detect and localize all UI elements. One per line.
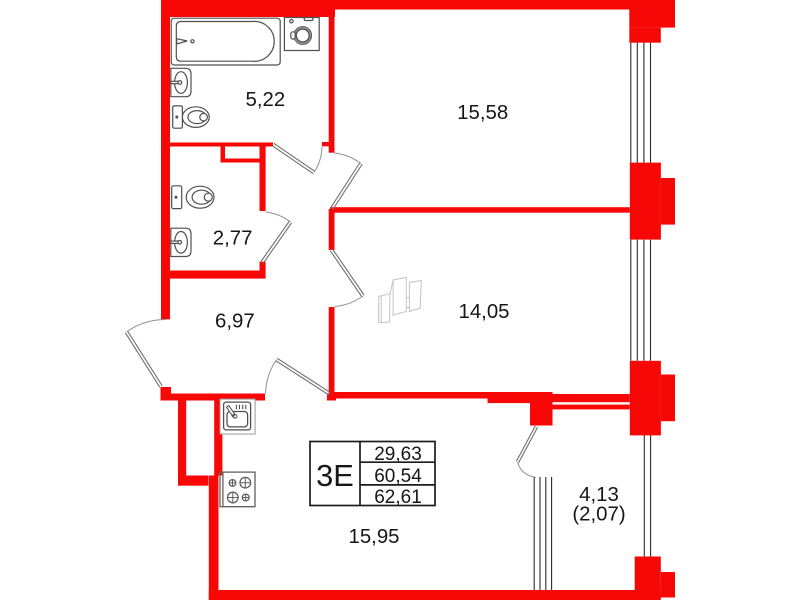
svg-text:6,97: 6,97: [215, 310, 255, 332]
svg-text:15,95: 15,95: [348, 526, 399, 548]
svg-text:15,58: 15,58: [457, 102, 508, 124]
svg-text:62,61: 62,61: [374, 487, 422, 508]
svg-text:60,54: 60,54: [374, 466, 422, 487]
svg-text:29,63: 29,63: [374, 444, 422, 465]
svg-text:14,05: 14,05: [458, 301, 509, 323]
svg-text:(2,07): (2,07): [572, 504, 625, 526]
svg-text:5,22: 5,22: [246, 89, 286, 111]
svg-text:3Е: 3Е: [316, 458, 354, 493]
svg-text:2,77: 2,77: [213, 227, 253, 249]
